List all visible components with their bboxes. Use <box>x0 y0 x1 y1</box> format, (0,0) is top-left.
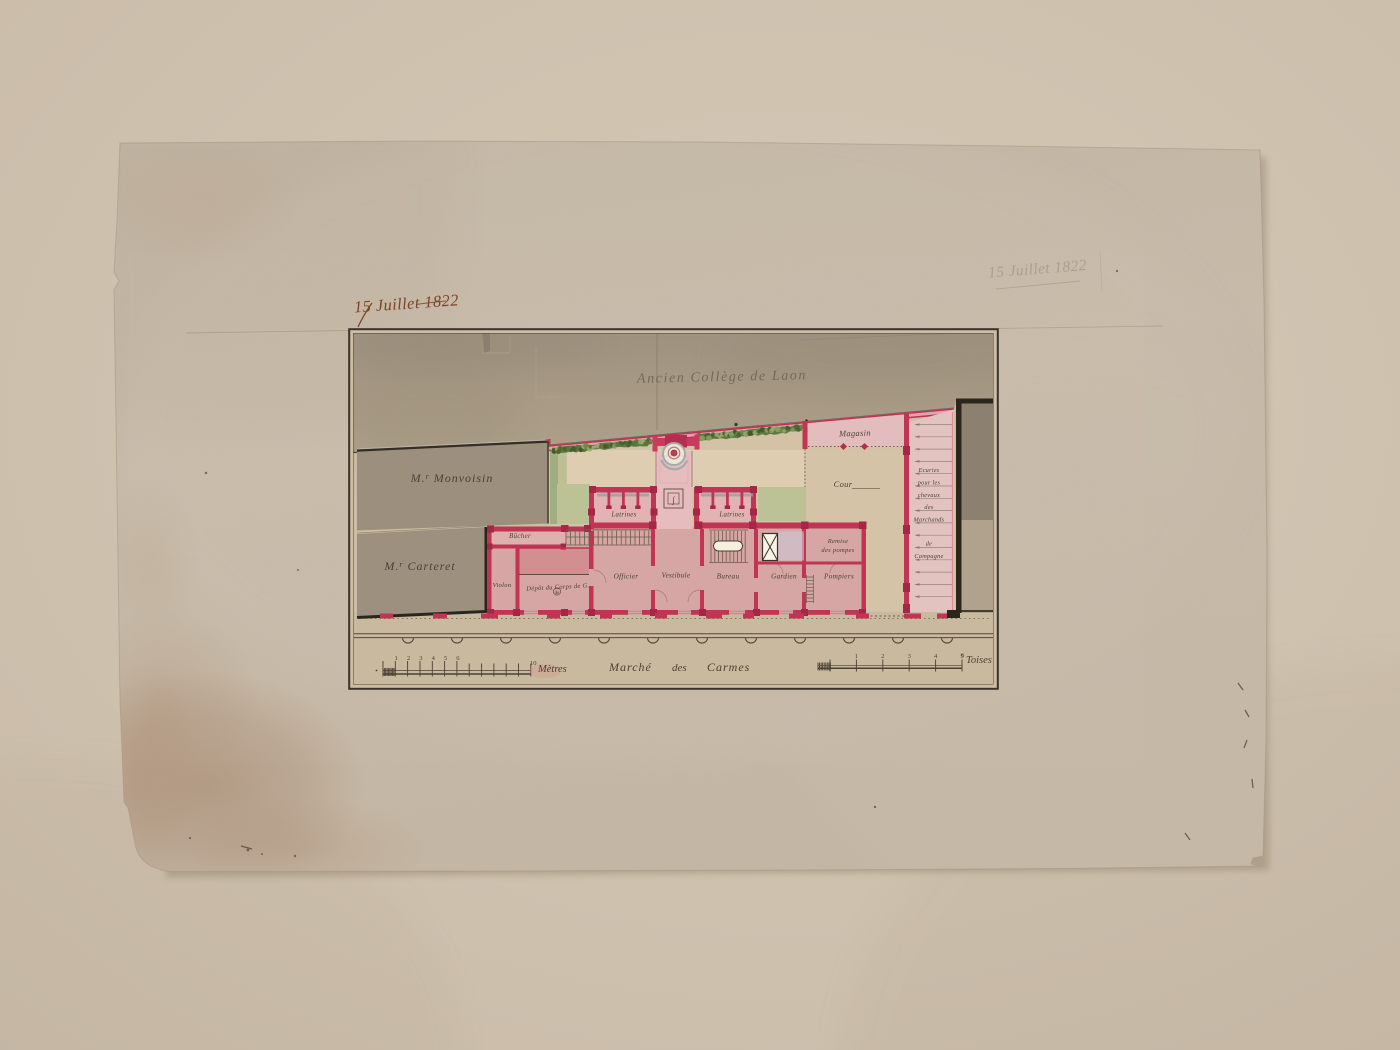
svg-text:Cour: Cour <box>834 479 853 489</box>
svg-text:Toises: Toises <box>966 655 992 666</box>
svg-text:2: 2 <box>407 655 410 662</box>
svg-text:Bûcher: Bûcher <box>509 532 531 540</box>
svg-text:chevaux: chevaux <box>918 492 940 499</box>
svg-text:de: de <box>926 541 932 548</box>
svg-text:Campagne: Campagne <box>914 553 943 560</box>
svg-text:Violon: Violon <box>493 582 512 589</box>
svg-text:pour les: pour les <box>917 480 941 487</box>
svg-text:Pompiers: Pompiers <box>823 573 854 581</box>
svg-text:3: 3 <box>419 655 422 662</box>
svg-text:de: de <box>555 591 561 596</box>
svg-text:Bureau: Bureau <box>717 573 740 581</box>
svg-text:Ecuries: Ecuries <box>917 467 939 474</box>
svg-text:10: 10 <box>530 660 537 667</box>
svg-text:Carmes: Carmes <box>707 660 750 674</box>
svg-text:1: 1 <box>855 653 858 660</box>
svg-text:Officier: Officier <box>614 573 639 581</box>
svg-text:Remise: Remise <box>827 538 849 545</box>
svg-text:Vestibule: Vestibule <box>662 572 691 580</box>
svg-text:Latrines: Latrines <box>718 512 744 519</box>
svg-text:des: des <box>924 504 933 511</box>
svg-text:des: des <box>672 662 687 674</box>
svg-text:1: 1 <box>395 655 398 662</box>
svg-text:2: 2 <box>881 653 884 660</box>
svg-text:Marchands: Marchands <box>913 517 945 524</box>
svg-text:Gardien: Gardien <box>771 573 797 581</box>
svg-text:Magasin: Magasin <box>838 427 871 438</box>
svg-text:Marché: Marché <box>608 660 652 674</box>
svg-text:des pompes: des pompes <box>821 547 854 554</box>
svg-text:5: 5 <box>444 655 447 662</box>
svg-text:Latrines: Latrines <box>610 512 636 519</box>
svg-text:3: 3 <box>908 653 911 660</box>
svg-text:M.r Monvoisin: M.r Monvoisin <box>410 471 494 485</box>
svg-text:M.r Carteret: M.r Carteret <box>383 559 455 573</box>
svg-text:Mètres: Mètres <box>537 664 567 675</box>
